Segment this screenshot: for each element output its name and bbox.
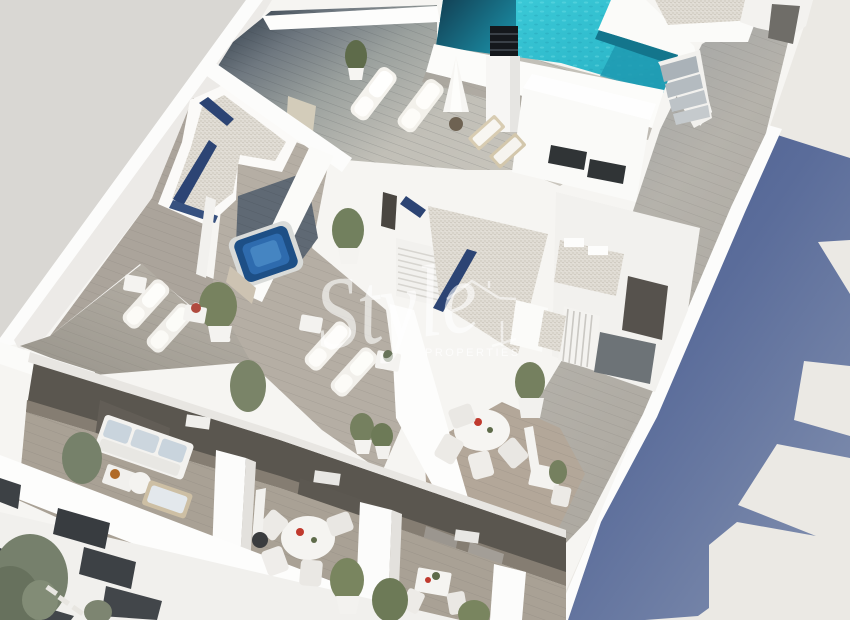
svg-text:PROPERTIES: PROPERTIES <box>425 347 521 359</box>
